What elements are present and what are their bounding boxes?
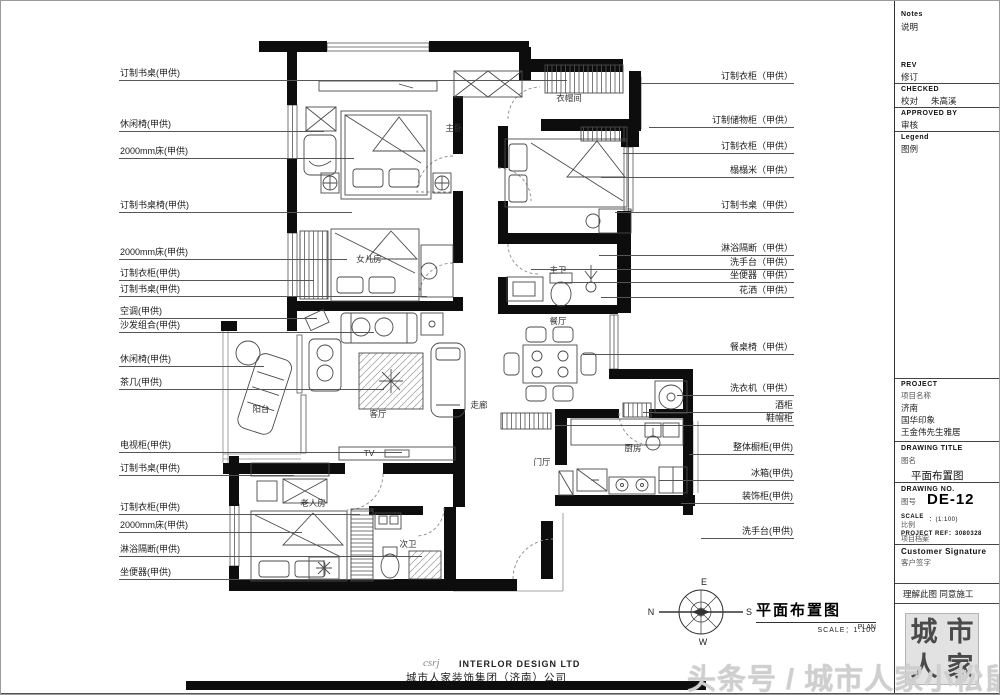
divider <box>895 482 1000 483</box>
room-label: 厨房 <box>624 442 641 454</box>
annotation-label: 洗衣机（甲供） <box>677 383 794 396</box>
annotation-label: 酒柜 <box>643 400 794 413</box>
room-label: 女儿房 <box>356 253 382 265</box>
dining-set <box>504 327 596 401</box>
annotation-label: 订制储物柜（甲供） <box>649 115 794 128</box>
divider <box>895 83 1000 84</box>
room-label: 衣帽间 <box>556 92 582 104</box>
divider <box>895 441 1000 442</box>
checked-label-en: CHECKED <box>901 86 939 93</box>
annotation-label: 整体橱柜(甲供) <box>689 442 794 455</box>
annotation-label: 电视柜(甲供) <box>119 440 402 453</box>
annotation-label: 订制书桌(甲供) <box>119 463 294 476</box>
project-city: 济南 <box>901 402 918 414</box>
floorplan-sheet: 订制书桌(甲供)休闲椅(甲供)2000mm床(甲供)订制书桌椅(甲供)2000m… <box>0 0 1000 695</box>
checked-by: 朱高溪 <box>931 95 957 107</box>
project-client: 王金伟先生雅居 <box>901 426 961 438</box>
notes-label-cn: 说明 <box>901 21 918 33</box>
signature-label-en: Customer Signature <box>901 547 986 556</box>
divider <box>895 544 1000 545</box>
kitchen-counter <box>571 419 683 494</box>
signature-label-cn: 客户签字 <box>901 557 931 568</box>
annotation-label: 订制书桌椅(甲供) <box>119 200 352 213</box>
annotation-label: 冰箱(甲供) <box>659 468 794 481</box>
deco-cabinet <box>559 471 573 495</box>
project-label-cn: 项目名称 <box>901 390 931 401</box>
annotation-label: 休闲椅(甲供) <box>119 354 264 367</box>
room-label: 餐厅 <box>549 315 566 327</box>
annotation-label: 休闲椅(甲供) <box>119 119 324 132</box>
room-label: 门厅 <box>533 456 550 468</box>
rev-label-en: REV <box>901 62 917 69</box>
room-label: 次卫 <box>399 538 416 550</box>
drawing-no-label-cn: 图号 <box>901 496 916 507</box>
annotation-label: 订制书桌（甲供） <box>615 200 794 213</box>
project-label-en: PROJECT <box>901 381 938 388</box>
footer-bar <box>186 681 706 690</box>
shoe-cabinet <box>501 413 551 429</box>
watermark: 头条号 / 城市人家小松鼠 <box>687 656 1000 695</box>
annotation-label: 沙发组合(甲供) <box>119 320 374 333</box>
notes-label-en: Notes <box>901 11 923 18</box>
plan-title-rule <box>756 622 876 623</box>
checked-label-cn: 校对 <box>901 95 918 107</box>
divider <box>895 583 1000 584</box>
legend-label-cn: 图例 <box>901 143 918 155</box>
plan-title-en: PLAN <box>858 624 876 631</box>
approved-label-cn: 审核 <box>901 119 918 131</box>
title-block: Notes 说明 REV 修订 CHECKED 校对 朱高溪 APPROVED … <box>894 1 1000 695</box>
annotation-label: 洗手台(甲供) <box>701 526 794 539</box>
drawing-title-value: 平面布置图 <box>911 468 964 483</box>
drawing-no-value: DE-12 <box>927 491 975 508</box>
project-estate: 国华印象 <box>901 414 935 426</box>
rev-label-cn: 修订 <box>901 71 918 83</box>
annotation-label: 餐桌椅（甲供） <box>583 342 794 355</box>
compass-e: E <box>701 577 707 587</box>
divider <box>895 378 1000 379</box>
drawing-title-label-cn: 图名 <box>901 455 916 466</box>
plan-title-block: 平面布置图 PLAN SCALE：1:100 <box>756 599 876 635</box>
floorplan-drawing <box>1 1 1000 695</box>
agreement-note: 理解此图 同意施工 <box>903 588 973 600</box>
legend-label-en: Legend <box>901 134 929 141</box>
annotation-label: 坐便器(甲供) <box>119 567 394 580</box>
balcony-slider <box>297 335 306 453</box>
annotation-label: 茶几(甲供) <box>119 377 384 390</box>
compass-s: S <box>746 607 752 617</box>
room-label: 走廊 <box>470 399 487 411</box>
room-label: 主卫 <box>549 264 566 276</box>
compass-w: W <box>699 637 708 647</box>
company-name-en: INTERLOR DESIGN LTD <box>459 659 580 669</box>
annotation-label: 淋浴隔断(甲供) <box>119 544 422 557</box>
annotation-label: 空调(甲供) <box>119 306 317 319</box>
room-label: 客厅 <box>369 408 386 420</box>
project-ref-cn: 项目档案 <box>901 534 929 544</box>
approved-label-en: APPROVED BY <box>901 110 957 117</box>
annotation-label: 花洒（甲供） <box>601 285 794 298</box>
plan-title: 平面布置图 <box>756 599 841 620</box>
annotation-label: 订制衣柜(甲供) <box>119 268 314 281</box>
compass-n: N <box>648 607 655 617</box>
divider <box>895 131 1000 132</box>
chaise-lounge <box>431 343 465 417</box>
master-desk <box>319 81 437 91</box>
scale-value: ：(1:100) <box>929 514 958 523</box>
annotation-label: 订制书桌(甲供) <box>119 284 427 297</box>
annotation-label: 鞋帽柜 <box>555 413 794 426</box>
annotation-label: 榻榻米（甲供） <box>601 165 794 178</box>
master-chair-set <box>304 107 336 175</box>
company-logo: csrj <box>423 657 440 669</box>
annotation-label: 装饰柜(甲供) <box>681 491 794 504</box>
annotation-label: 2000mm床(甲供) <box>119 146 354 159</box>
drawing-title-label-en: DRAWING TITLE <box>901 445 963 452</box>
divider <box>895 107 1000 108</box>
annotation-label: 订制衣柜（甲供） <box>623 141 794 154</box>
divider <box>895 603 1000 604</box>
annotation-label: 订制衣柜（甲供） <box>641 71 794 84</box>
room-label: 阳台 <box>252 403 269 415</box>
room-label: 主卧 <box>445 122 462 134</box>
master-nightstands <box>321 173 451 193</box>
annotation-label: 坐便器（甲供） <box>559 270 794 283</box>
annotation-label: 2000mm床(甲供) <box>119 520 302 533</box>
annotation-label: 淋浴隔断（甲供） <box>599 243 794 256</box>
annotation-label: 2000mm床(甲供) <box>119 247 347 260</box>
annotation-label: 洗手台（甲供） <box>531 257 794 270</box>
room-label: 老人房 <box>300 497 326 509</box>
annotation-label: 订制书桌(甲供) <box>119 68 567 81</box>
room-label: TV <box>364 448 375 458</box>
